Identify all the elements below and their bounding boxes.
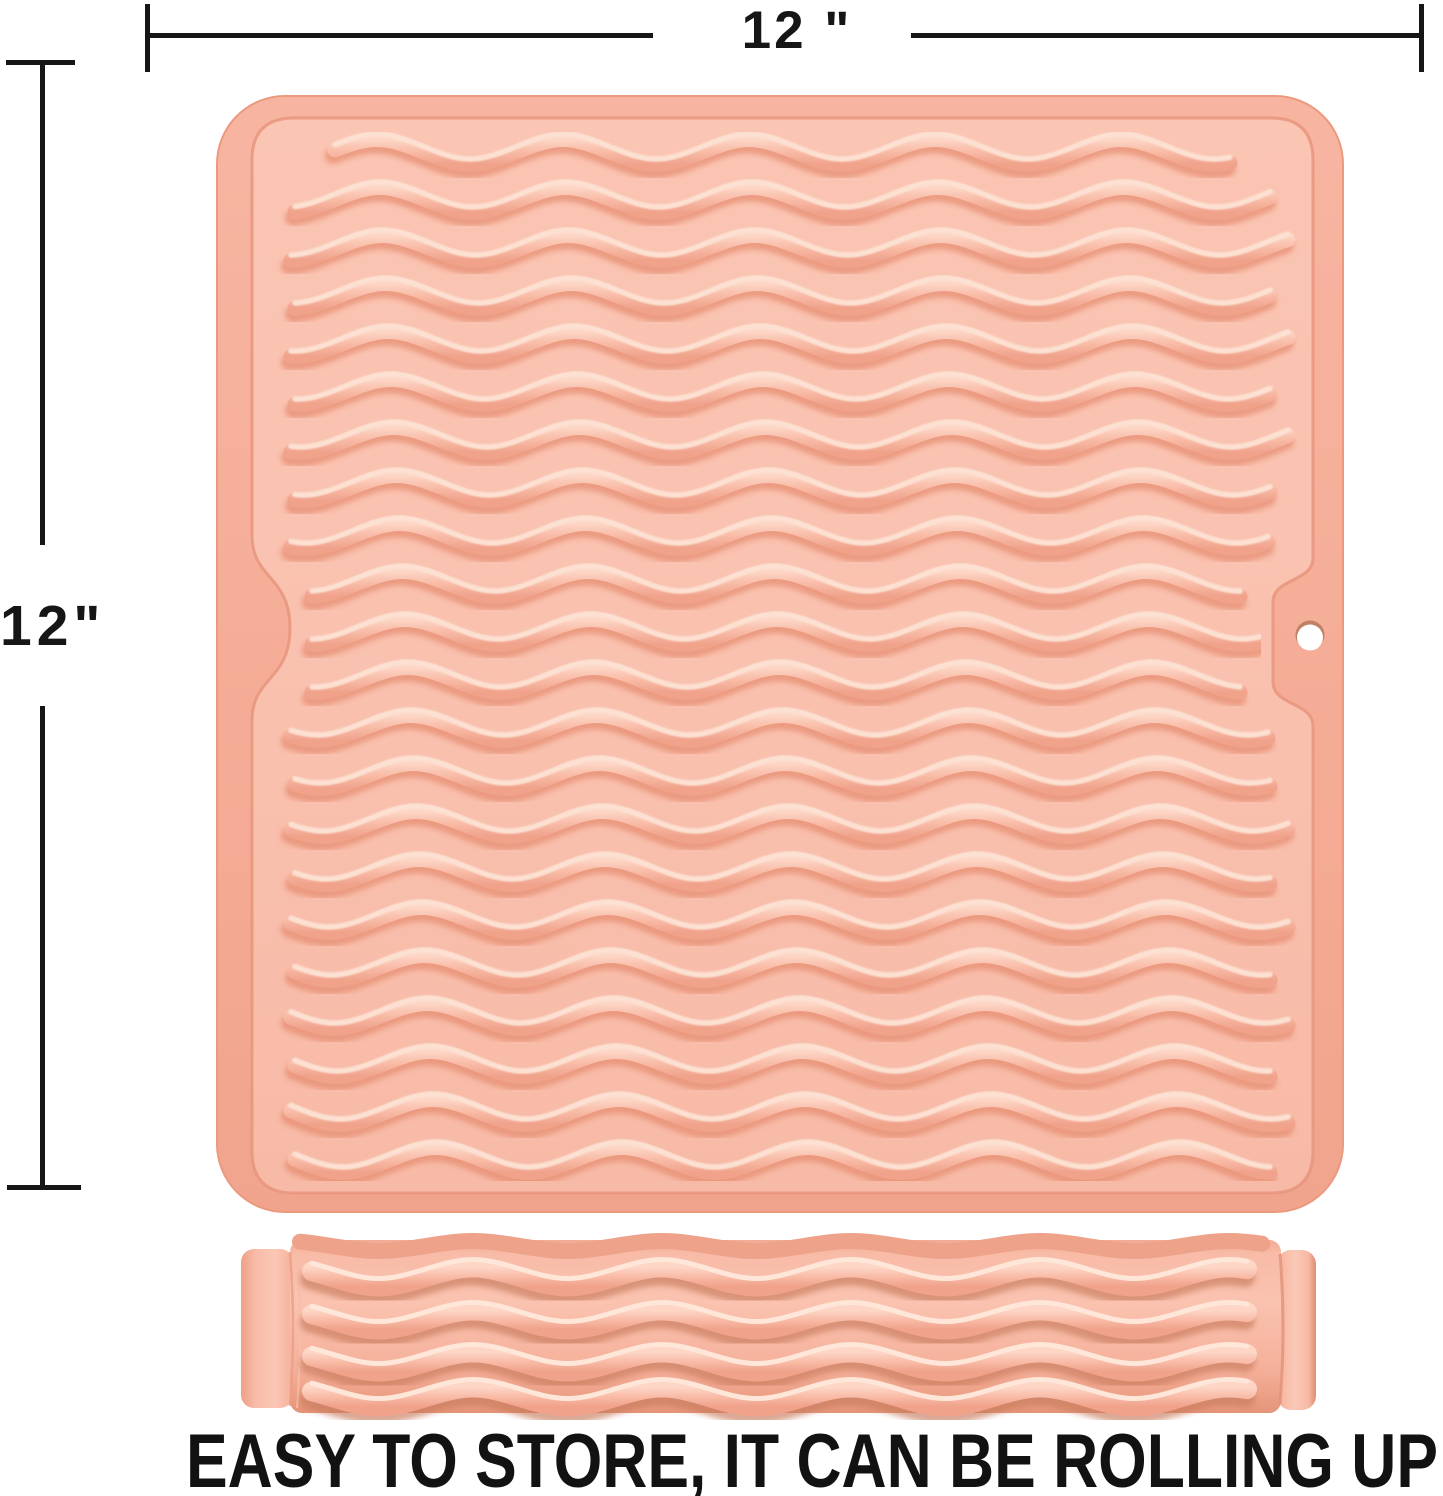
svg-text:12": 12" [0, 594, 105, 658]
svg-text:EASY TO STORE, IT CAN BE ROLLI: EASY TO STORE, IT CAN BE ROLLING UP [186, 1419, 1438, 1496]
svg-text:12 ": 12 " [742, 1, 853, 60]
